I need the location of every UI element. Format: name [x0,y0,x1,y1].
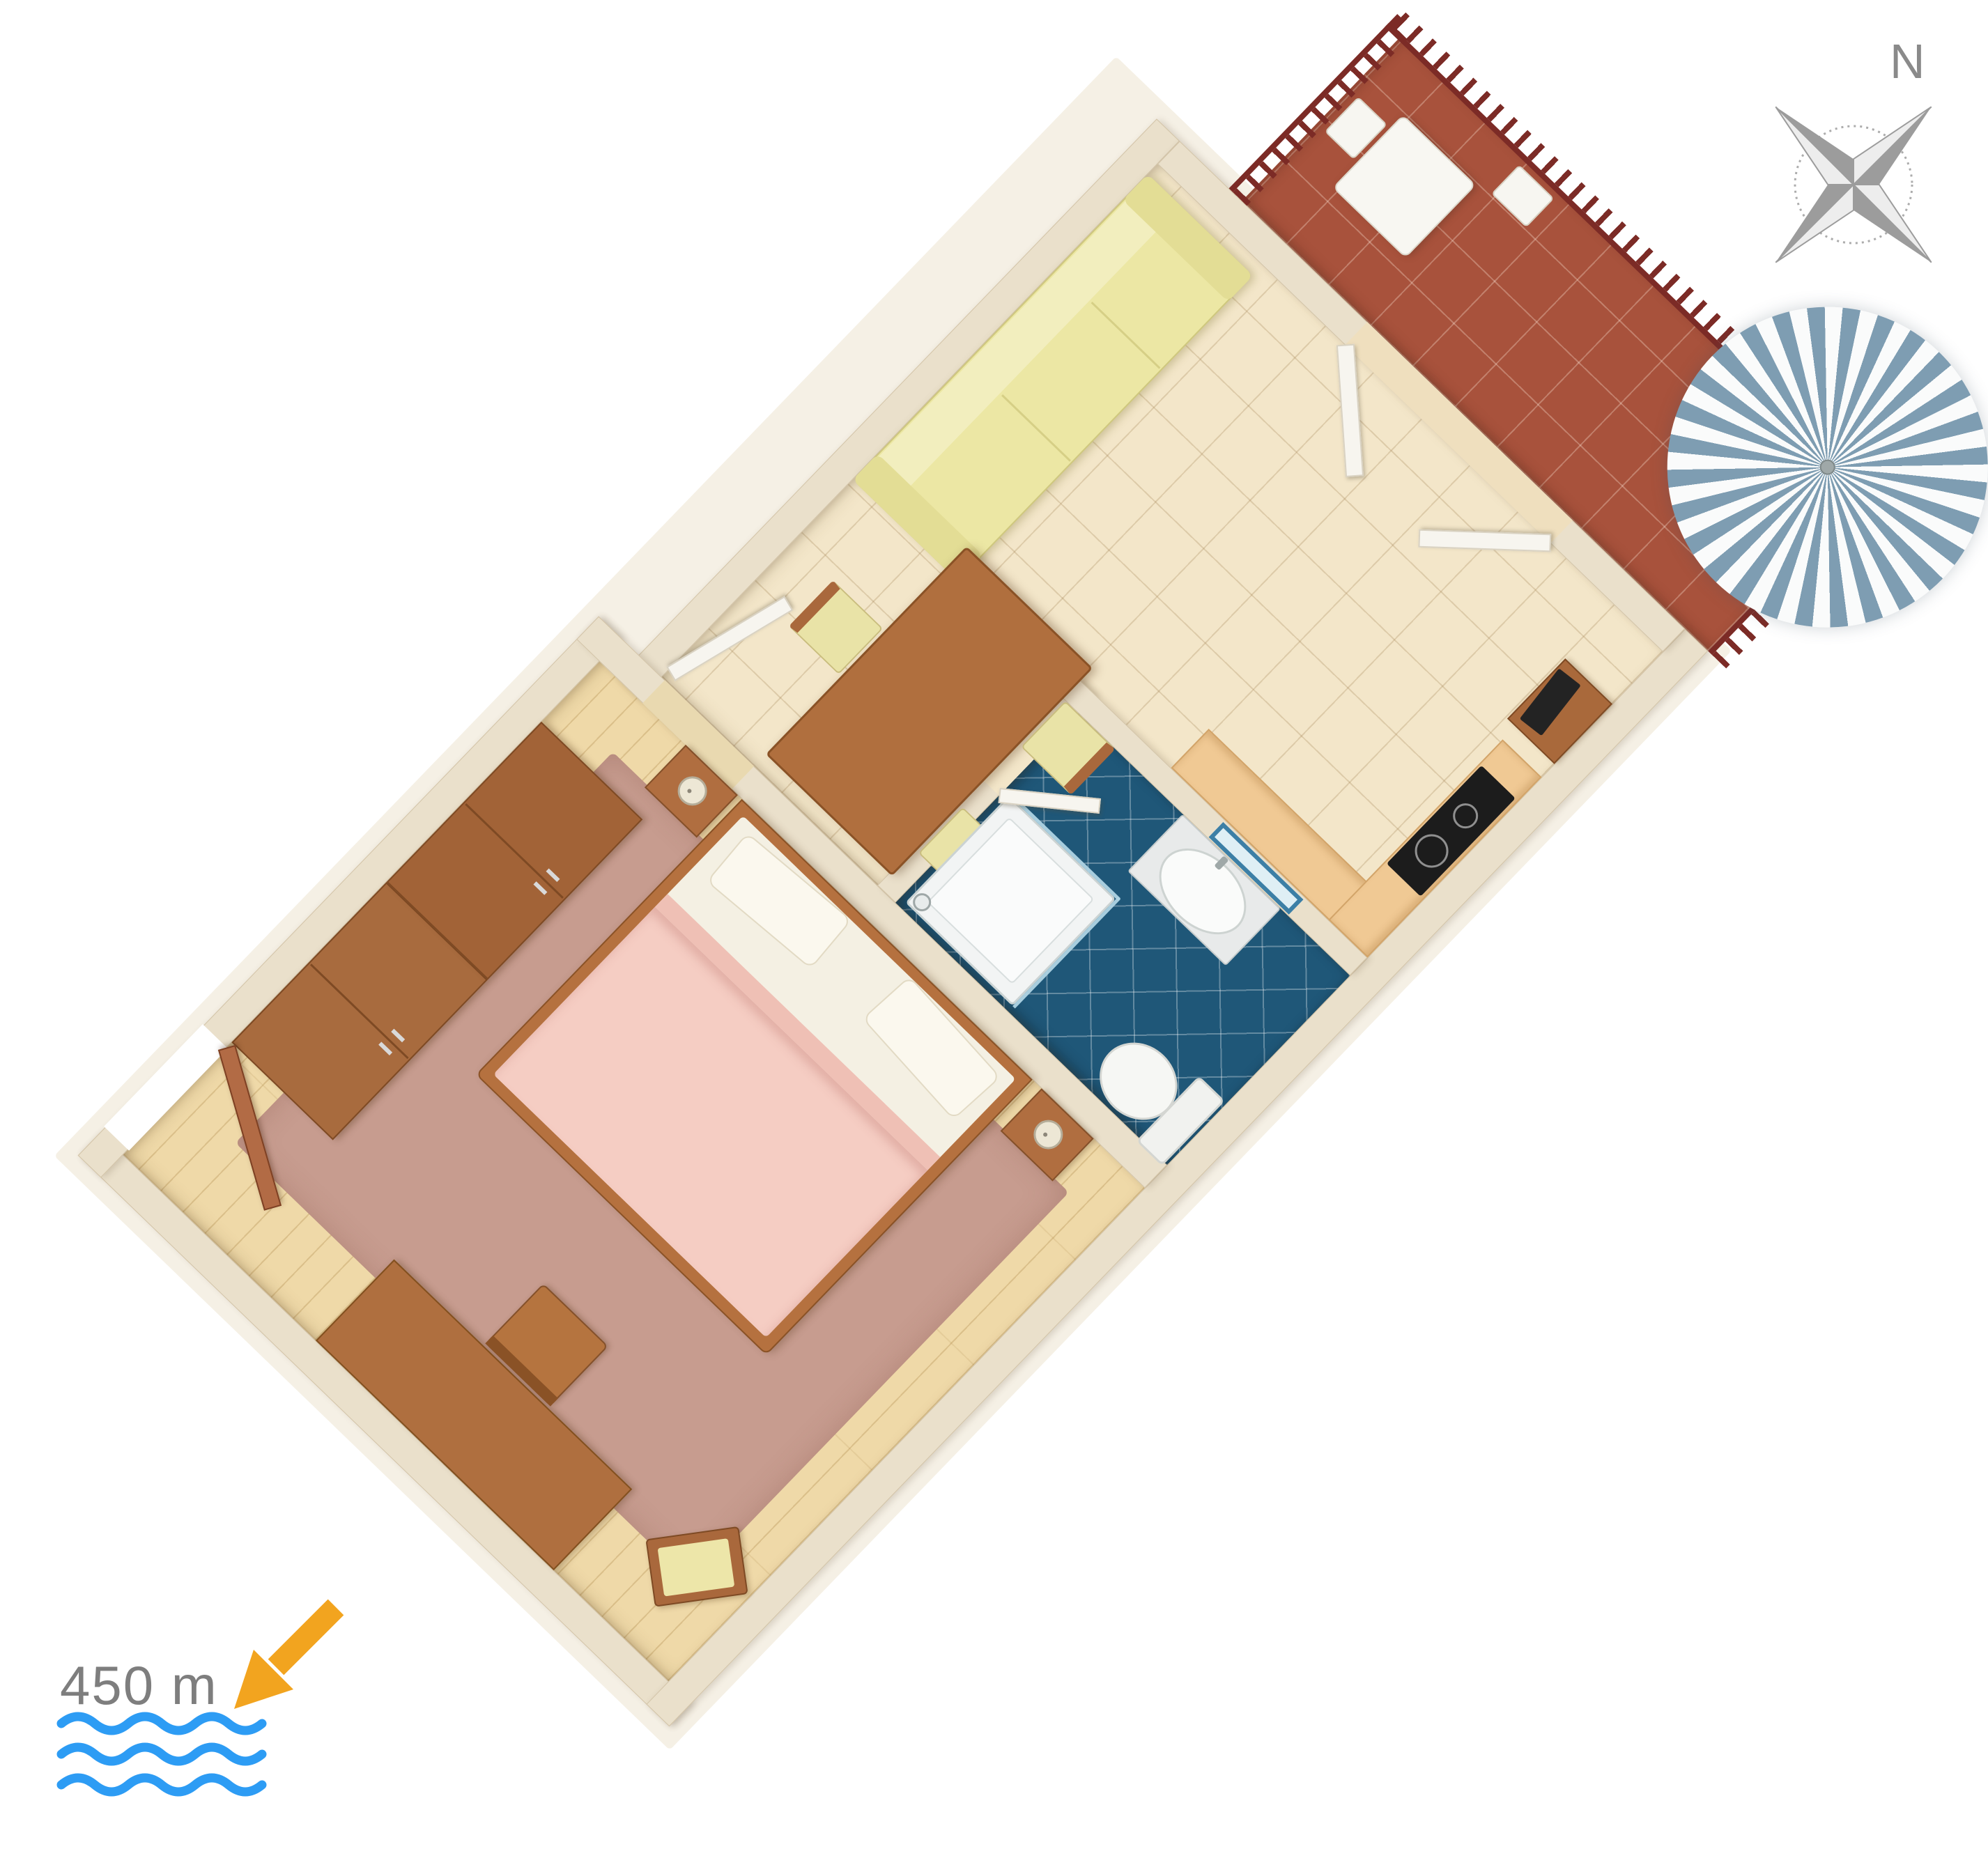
compass-rose-icon [1735,66,1972,303]
corner-bench-cushion [658,1538,735,1597]
apartment-plan [78,0,1865,1726]
waves-icon [56,1708,286,1806]
floorplan-canvas: N 450 m [0,0,1988,1858]
